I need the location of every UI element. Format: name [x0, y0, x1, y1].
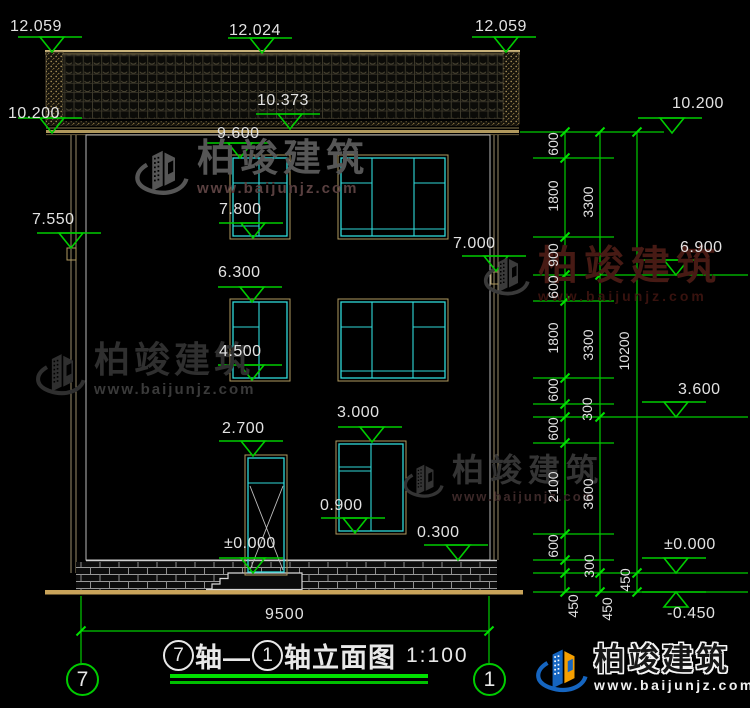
- elevation-label-eave-right: 10.200: [672, 95, 724, 113]
- elevation-label-plinth-top: 0.300: [417, 524, 460, 542]
- ground-line: [45, 590, 523, 595]
- title-suffix: 轴立面图: [284, 636, 396, 675]
- brand-site: www.baijunjz.com: [594, 678, 750, 692]
- brand-name: 柏竣建筑: [594, 644, 750, 675]
- elevation-label-fascia: 10.373: [257, 92, 309, 110]
- window-floor2-right: [338, 299, 448, 381]
- dim-inner-1: 1800: [545, 164, 561, 228]
- elevation-label-canopy-right: 7.000: [453, 235, 496, 253]
- dim-outer-1: 450: [617, 548, 633, 612]
- elevation-label-win2-top: 6.300: [218, 264, 261, 282]
- elevation-label-below-ground: -0.450: [667, 605, 715, 623]
- elevation-label-roof-ridge: 12.024: [229, 22, 281, 40]
- dim-mid-0: 3300: [580, 170, 596, 234]
- elevation-label-eave-left: 10.200: [8, 105, 60, 123]
- window-floor1: [336, 441, 406, 534]
- entry-door: [245, 455, 287, 575]
- dim-outer-0: 10200: [616, 319, 632, 383]
- elevation-label-zero-right: ±0.000: [664, 536, 716, 554]
- drawing-title: 7 轴— 1 轴立面图 1:100: [162, 636, 469, 675]
- brand-footer: 柏竣建筑 www.baijunjz.com: [534, 641, 750, 695]
- axis-number-left: 7: [77, 668, 89, 692]
- elevation-label-win1-bottom: 0.900: [320, 497, 363, 515]
- window-floor2-left: [230, 299, 290, 381]
- elevation-drawing-canvas: 柏竣建筑 www.baijunjz.com 柏竣建筑 www.baijunjz.…: [0, 0, 750, 708]
- elevation-label-win2-bottom: 4.500: [219, 343, 262, 361]
- dim-overall-width: 9500: [265, 606, 305, 624]
- elevation-label-win1-top: 3.000: [337, 404, 380, 422]
- title-scale: 1:100: [406, 644, 469, 668]
- title-underline-2: [170, 681, 428, 684]
- window-floor3-right: [338, 155, 448, 239]
- title-axis-to: 1: [252, 640, 283, 671]
- dim-inner-11: 450: [565, 574, 581, 638]
- dim-inner-6: 300: [579, 377, 595, 441]
- axis-bubble-7: 7: [66, 663, 99, 696]
- elevation-label-beam-left: 7.550: [32, 211, 75, 229]
- beam-end-right: [491, 272, 500, 284]
- dim-mid-1: 3300: [580, 313, 596, 377]
- elevation-label-zero-door: ±0.000: [224, 535, 276, 553]
- dim-inner-7: 600: [545, 397, 561, 461]
- roof-gable-right: [503, 52, 519, 124]
- dim-mid-3: 450: [599, 577, 615, 641]
- title-axis-from: 7: [163, 640, 194, 671]
- wall-outline: [86, 135, 490, 560]
- dim-inner-10: 300: [581, 534, 597, 598]
- dim-inner-9: 600: [545, 514, 561, 578]
- brand-logo-icon: [534, 641, 588, 695]
- elevation-label-roof-right: 12.059: [475, 18, 527, 36]
- elevation-label-win3-bottom: 7.800: [219, 201, 262, 219]
- downpipe-right: [494, 135, 498, 560]
- elevation-label-door-top: 2.700: [222, 420, 265, 438]
- title-underline: [170, 674, 428, 678]
- title-joiner: 轴—: [195, 636, 251, 675]
- elevation-label-floor2: 3.600: [678, 381, 721, 399]
- elevation-label-roof-left: 12.059: [10, 18, 62, 36]
- axis-bubble-1: 1: [473, 663, 506, 696]
- drawing-linework: [0, 0, 750, 708]
- axis-number-right: 1: [484, 668, 496, 692]
- dim-inner-8: 2100: [545, 455, 561, 519]
- elevation-label-floor3: 6.900: [680, 239, 723, 257]
- downpipe-left: [71, 135, 76, 573]
- elevation-label-wall-top: 9.600: [217, 125, 260, 143]
- dim-mid-2: 3600: [580, 462, 596, 526]
- window-floor3-left: [230, 155, 290, 239]
